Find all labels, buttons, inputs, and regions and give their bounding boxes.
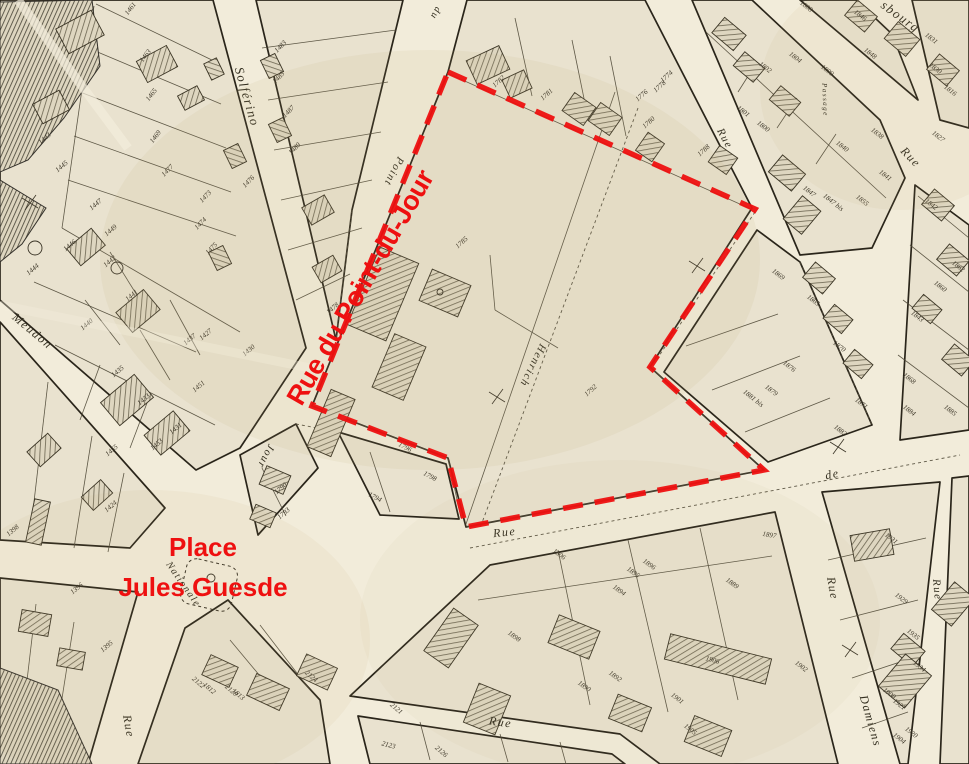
annotation-place-name-line2: Jules Guesde [118, 572, 287, 602]
historical-cadastral-map: 1461146314651469147714731474147514761447… [0, 0, 969, 764]
street-name-label: Rue [930, 577, 944, 601]
street-name-label: de [824, 466, 841, 482]
map-svg: 1461146314651469147714731474147514761447… [0, 0, 969, 764]
annotation-place-name-line1: Place [169, 532, 237, 562]
